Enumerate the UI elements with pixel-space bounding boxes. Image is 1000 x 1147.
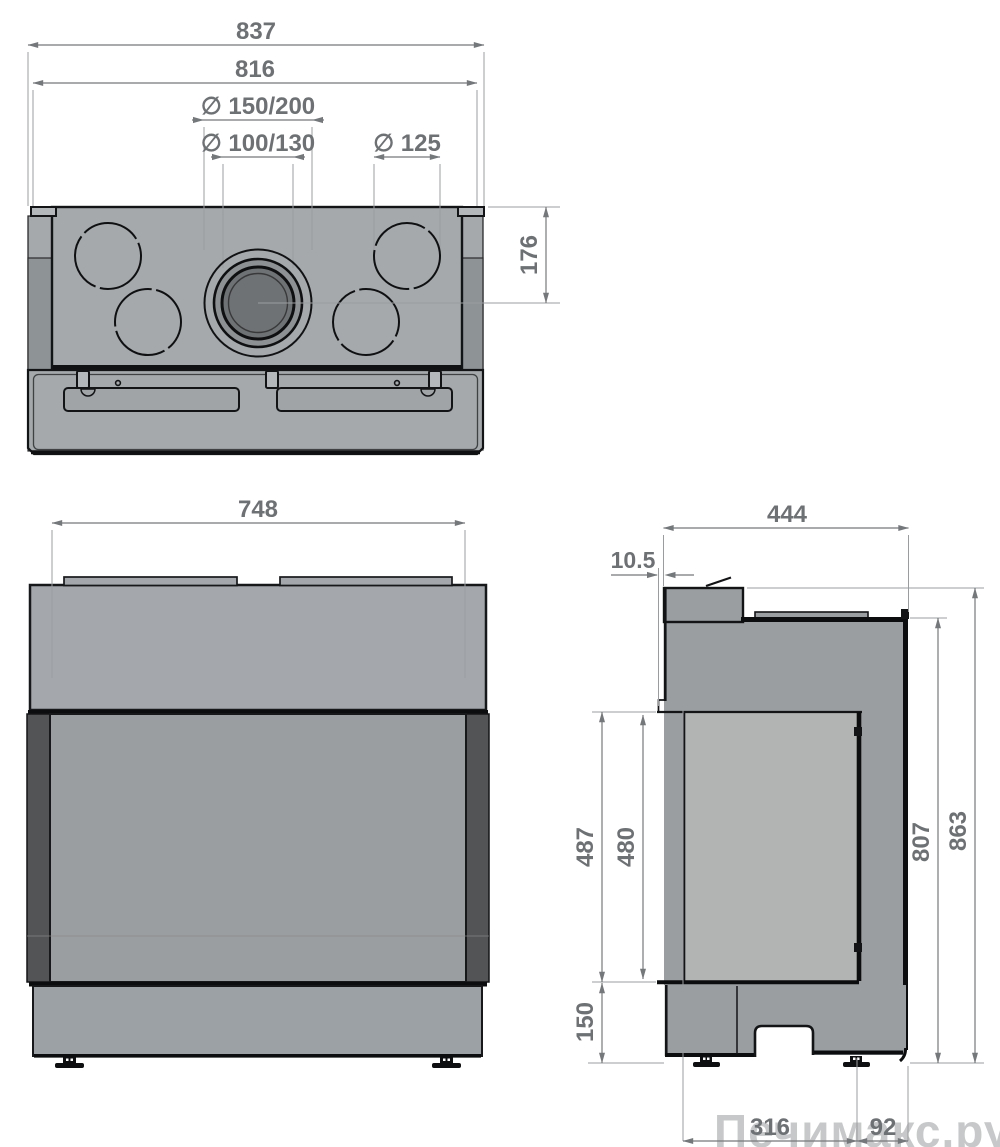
apron-tab-left xyxy=(77,371,89,388)
top-view: 837 816 ∅ 150/200 ∅ 100/130 xyxy=(28,18,560,454)
side-glass-window xyxy=(683,712,859,981)
front-left-trim xyxy=(27,714,50,982)
side-collar-block xyxy=(664,588,743,622)
front-right-foot xyxy=(432,1057,461,1068)
front-view: 748 xyxy=(27,496,489,1068)
dim-intake-diameter: ∅ 100/130 xyxy=(201,130,315,160)
top-left-tab xyxy=(31,207,56,216)
dim-flue-diameter: ∅ 150/200 xyxy=(192,93,324,123)
top-right-tab xyxy=(458,207,484,216)
apron-tab-center xyxy=(266,371,278,388)
dim-label-flue: ∅ 150/200 xyxy=(201,93,315,120)
dim-label-816: 816 xyxy=(235,56,275,83)
left-slot-notch xyxy=(81,389,95,396)
front-glass-window xyxy=(50,714,466,982)
front-right-trim xyxy=(466,714,489,982)
front-base xyxy=(33,986,482,1056)
side-rear-hook xyxy=(901,609,909,619)
front-left-foot xyxy=(55,1057,84,1068)
dim-label-480: 480 xyxy=(613,827,640,867)
dim-label-748: 748 xyxy=(238,496,278,523)
dim-knockout-diameter: ∅ 125 xyxy=(373,130,441,157)
dim-label-316: 316 xyxy=(750,1114,790,1141)
drawing-sheet: Печимакс.ру xyxy=(0,0,1000,1147)
side-collar-mark xyxy=(706,578,731,587)
right-slot-notch xyxy=(421,389,435,396)
dim-label-intake: ∅ 100/130 xyxy=(201,130,315,157)
apron-tab-right xyxy=(429,371,441,388)
dim-label-176: 176 xyxy=(516,235,543,275)
dim-label-807: 807 xyxy=(908,822,935,862)
side-base-notch-fill xyxy=(755,1026,813,1057)
side-window-clip-top xyxy=(854,727,862,736)
dim-label-92: 92 xyxy=(870,1114,897,1141)
front-top-tab-right xyxy=(280,577,452,586)
dim-label-knockout: ∅ 125 xyxy=(373,130,441,157)
dim-rear-span: 92 xyxy=(857,1114,908,1141)
dim-label-444: 444 xyxy=(767,501,808,528)
dim-label-863: 863 xyxy=(945,811,972,851)
dim-glass-width: 748 xyxy=(52,496,465,523)
side-window-clip-bottom xyxy=(854,943,862,952)
front-top-tab-left xyxy=(64,577,237,586)
dim-label-150: 150 xyxy=(572,1002,599,1042)
dim-label-837: 837 xyxy=(236,18,276,45)
front-upper-chamber xyxy=(30,585,486,710)
dim-label-487: 487 xyxy=(572,827,599,867)
side-view: 444 10.5 487 480 xyxy=(572,501,984,1141)
dim-base-height: 150 xyxy=(572,983,664,1063)
technical-drawing: 837 816 ∅ 150/200 ∅ 100/130 xyxy=(0,0,1000,1147)
side-front-foot xyxy=(693,1056,720,1067)
dim-label-10-5: 10.5 xyxy=(611,547,656,573)
dim-rear-to-flue: 176 xyxy=(488,207,560,303)
dim-glass-height: 480 xyxy=(613,715,643,979)
